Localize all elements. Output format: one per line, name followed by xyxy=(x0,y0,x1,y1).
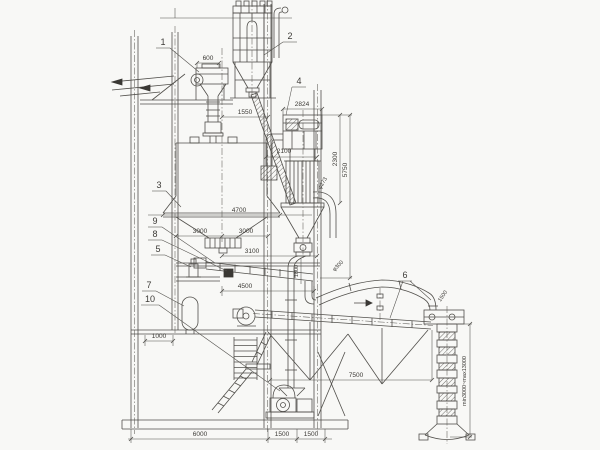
callout-2: 2 xyxy=(287,31,292,41)
dim-1000: 1000 xyxy=(152,333,167,340)
dim-2300: 2300 xyxy=(332,151,339,166)
dim-6000: 6000 xyxy=(193,431,208,438)
dim-7500: 7500 xyxy=(349,372,364,379)
callout-1: 1 xyxy=(160,37,165,47)
dim-spout-range: min3000~max13000 xyxy=(462,356,468,406)
air-tank xyxy=(182,297,198,334)
dim-2824: 2824 xyxy=(295,101,310,108)
dim-4500: 4500 xyxy=(238,283,253,290)
technical-drawing: 600 1550 2824 2100 2300 5750 4700 3000 3… xyxy=(0,0,600,450)
callout-4: 4 xyxy=(296,76,301,86)
dim-600: 600 xyxy=(203,55,214,62)
dim-1800: 1800 xyxy=(294,265,300,277)
dim-1500-right: 1500 xyxy=(304,431,319,438)
feeder-machine xyxy=(112,0,252,242)
callout-3: 3 xyxy=(156,180,161,190)
dim-1500-left: 1500 xyxy=(275,431,290,438)
dim-3100: 3100 xyxy=(245,248,260,255)
callout-9: 9 xyxy=(152,216,157,226)
bag-filter-unit xyxy=(230,1,288,98)
callout-10: 10 xyxy=(145,294,155,304)
callout-6: 6 xyxy=(402,270,407,280)
item-callouts: 1 2 3 4 5 6 7 8 9 10 xyxy=(141,31,431,391)
pipe-label-1500: 1500 xyxy=(437,290,449,303)
dim-4700: 4700 xyxy=(232,207,247,214)
dim-5750: 5750 xyxy=(342,162,349,177)
callout-7: 7 xyxy=(146,280,151,290)
dim-3000-right: 3000 xyxy=(239,228,254,235)
dim-1550: 1550 xyxy=(238,109,253,116)
callout-5: 5 xyxy=(155,244,160,254)
dim-2100: 2100 xyxy=(277,148,292,155)
callout-8: 8 xyxy=(152,229,157,239)
stairs xyxy=(212,332,271,413)
dim-3000-left: 3000 xyxy=(193,228,208,235)
loading-conveyor-truss xyxy=(233,288,433,384)
silo xyxy=(163,137,280,253)
pipe-label-dia300: φ300 xyxy=(332,260,345,273)
